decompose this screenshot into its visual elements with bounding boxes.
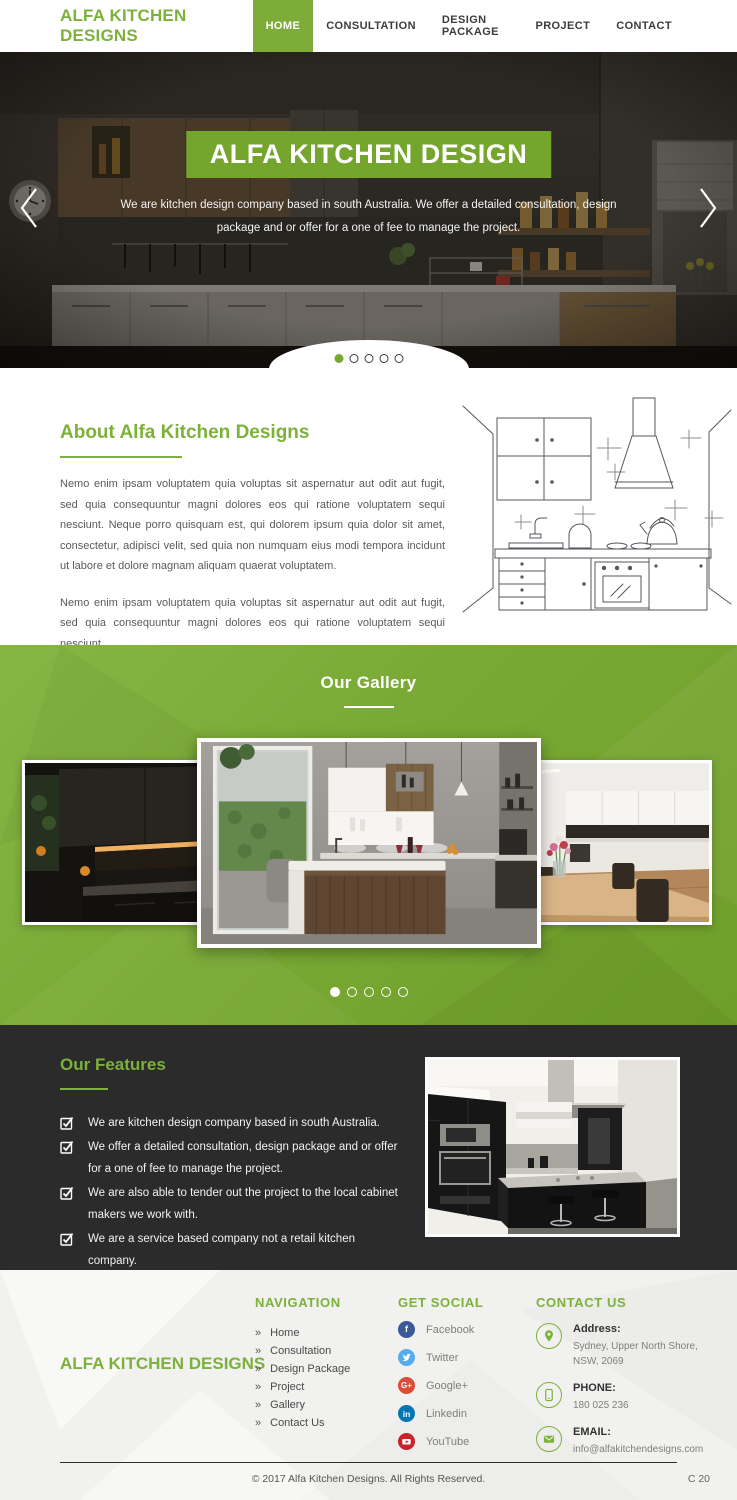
footer-social-column: GET SOCIAL f Facebook Twitter G+ Google+… (398, 1295, 483, 1450)
next-slide-button[interactable] (695, 185, 721, 231)
nav-item-home[interactable]: HOME (253, 0, 314, 52)
social-link-twitter[interactable]: Twitter (398, 1349, 483, 1366)
footer-navigation-title: NAVIGATION (255, 1295, 350, 1310)
phone-icon (536, 1382, 562, 1408)
feature-item: We are a service based company not a ret… (60, 1228, 400, 1272)
slider-dot-2[interactable] (349, 354, 358, 363)
footer-link-design-package[interactable]: »Design Package (255, 1363, 350, 1375)
footer-link-gallery[interactable]: »Gallery (255, 1399, 350, 1411)
social-link-linkedin[interactable]: in Linkedin (398, 1405, 483, 1422)
footer-link-home[interactable]: »Home (255, 1327, 350, 1339)
hero-title-banner: ALFA KITCHEN DESIGN (186, 131, 552, 178)
chevron-left-icon (16, 185, 42, 231)
feature-item: We are also able to tender out the proje… (60, 1182, 400, 1226)
gallery-dot-3[interactable] (364, 987, 374, 997)
nav-item-design-package[interactable]: DESIGN PACKAGE (429, 0, 523, 52)
contact-email-value[interactable]: info@alfakitchendesigns.com (573, 1442, 703, 1457)
contact-email-label: EMAIL: (573, 1426, 703, 1438)
gallery-section: Our Gallery (0, 645, 737, 1025)
gallery-image-modern-kitchen[interactable] (197, 738, 541, 948)
nav-item-project[interactable]: PROJECT (522, 0, 603, 52)
slider-dot-1[interactable] (334, 354, 343, 363)
features-list: We are kitchen design company based in s… (60, 1112, 400, 1272)
double-chevron-icon: » (255, 1327, 261, 1339)
contact-phone-value[interactable]: 180 025 236 (573, 1398, 629, 1413)
prev-slide-button[interactable] (16, 185, 42, 231)
double-chevron-icon: » (255, 1399, 261, 1411)
chevron-right-icon (695, 185, 721, 231)
contact-address-label: Address: (573, 1323, 701, 1335)
about-paragraph-1: Nemo enim ipsam voluptatem quia voluptas… (60, 474, 445, 577)
feature-item: We offer a detailed consultation, design… (60, 1136, 400, 1180)
hero-title: ALFA KITCHEN DESIGN (210, 139, 528, 170)
header: ALFA KITCHEN DESIGNS HOME CONSULTATION D… (0, 0, 737, 52)
gallery-dot-2[interactable] (347, 987, 357, 997)
gallery-dot-1[interactable] (330, 987, 340, 997)
about-section: About Alfa Kitchen Designs Nemo enim ips… (0, 368, 737, 645)
envelope-icon (536, 1426, 562, 1452)
checkbox-check-icon (60, 1186, 75, 1200)
checkbox-check-icon (60, 1116, 75, 1130)
gallery-dots (0, 987, 737, 997)
location-pin-icon (536, 1323, 562, 1349)
twitter-icon (398, 1349, 415, 1366)
checkbox-check-icon (60, 1140, 75, 1154)
footer-brand-logo[interactable]: ALFA KITCHEN DESIGNS (60, 1354, 265, 1374)
features-kitchen-image (425, 1057, 680, 1237)
features-title-underline (60, 1088, 108, 1090)
social-link-google-plus[interactable]: G+ Google+ (398, 1377, 483, 1394)
version-label: C 20 (688, 1473, 710, 1485)
youtube-icon (398, 1433, 415, 1450)
footer: ALFA KITCHEN DESIGNS NAVIGATION »Home »C… (0, 1270, 737, 1500)
facebook-icon: f (398, 1321, 415, 1338)
about-title: About Alfa Kitchen Designs (60, 422, 445, 444)
footer-social-title: GET SOCIAL (398, 1295, 483, 1310)
social-link-facebook[interactable]: f Facebook (398, 1321, 483, 1338)
features-title: Our Features (60, 1055, 400, 1075)
footer-divider (60, 1462, 677, 1463)
nav-item-contact[interactable]: CONTACT (603, 0, 685, 52)
footer-contact-title: CONTACT US (536, 1295, 701, 1310)
slider-dot-4[interactable] (379, 354, 388, 363)
page: ALFA KITCHEN DESIGNS HOME CONSULTATION D… (0, 0, 737, 1500)
google-plus-icon: G+ (398, 1377, 415, 1394)
brand-logo[interactable]: ALFA KITCHEN DESIGNS (60, 6, 253, 46)
gallery-title: Our Gallery (0, 645, 737, 693)
kitchen-sketch-illustration (457, 392, 737, 616)
contact-phone-label: PHONE: (573, 1382, 629, 1394)
slider-dot-5[interactable] (394, 354, 403, 363)
double-chevron-icon: » (255, 1345, 261, 1357)
footer-link-project[interactable]: »Project (255, 1381, 350, 1393)
footer-navigation-column: NAVIGATION »Home »Consultation »Design P… (255, 1295, 350, 1435)
gallery-dot-5[interactable] (398, 987, 408, 997)
linkedin-icon: in (398, 1405, 415, 1422)
footer-link-contact-us[interactable]: »Contact Us (255, 1417, 350, 1429)
double-chevron-icon: » (255, 1381, 261, 1393)
footer-contact-column: CONTACT US Address: Sydney, Upper North … (536, 1295, 701, 1457)
hero-slider: ALFA KITCHEN DESIGN We are kitchen desig… (0, 52, 737, 368)
contact-address-value: Sydney, Upper North Shore, NSW, 2069 (573, 1339, 701, 1369)
nav-item-consultation[interactable]: CONSULTATION (313, 0, 429, 52)
contact-email-row: EMAIL: info@alfakitchendesigns.com (536, 1426, 701, 1457)
contact-phone-row: PHONE: 180 025 236 (536, 1382, 701, 1413)
hero-subtitle: We are kitchen design company based in s… (101, 194, 636, 239)
features-section: Our Features We are kitchen design compa… (0, 1025, 737, 1270)
gallery-title-underline (344, 706, 394, 708)
gallery-dot-4[interactable] (381, 987, 391, 997)
footer-link-consultation[interactable]: »Consultation (255, 1345, 350, 1357)
checkbox-check-icon (60, 1232, 75, 1246)
double-chevron-icon: » (255, 1417, 261, 1429)
copyright-text: © 2017 Alfa Kitchen Designs. All Rights … (0, 1473, 737, 1485)
slider-dot-3[interactable] (364, 354, 373, 363)
main-nav: HOME CONSULTATION DESIGN PACKAGE PROJECT… (253, 0, 685, 52)
social-link-youtube[interactable]: YouTube (398, 1433, 483, 1450)
contact-address-row: Address: Sydney, Upper North Shore, NSW,… (536, 1323, 701, 1369)
double-chevron-icon: » (255, 1363, 261, 1375)
hero-slider-dots (334, 354, 403, 363)
feature-item: We are kitchen design company based in s… (60, 1112, 400, 1134)
about-title-underline (60, 456, 182, 458)
